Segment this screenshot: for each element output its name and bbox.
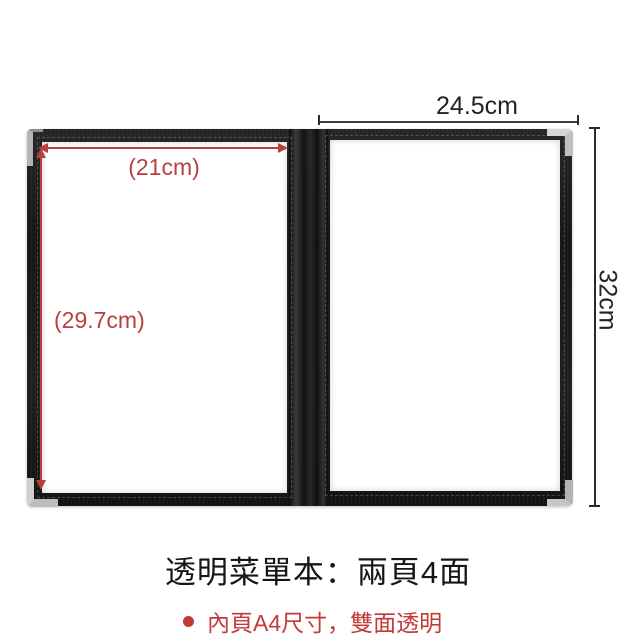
arrowhead-right	[278, 143, 288, 153]
inner-height-arrow-line	[40, 150, 42, 481]
corner-protector-bottom-right	[547, 480, 573, 506]
outer-height-label: 32cm	[593, 269, 622, 330]
inner-width-label: (21cm)	[44, 155, 284, 180]
corner-protector-top-right	[547, 129, 573, 156]
outer-width-line	[319, 121, 578, 123]
inner-width-arrow-line	[44, 147, 284, 149]
right-page	[330, 140, 560, 491]
caption-title: 透明菜單本：兩頁4面	[165, 547, 471, 592]
outer-width-label: 24.5cm	[436, 92, 518, 121]
outer-width-tick-left	[318, 115, 320, 125]
folder-spine	[289, 129, 328, 506]
product-image: 24.5cm 32cm (21cm) (29.7cm) 透明菜單本：兩頁4面 內…	[0, 0, 640, 640]
outer-height-tick-bottom	[589, 505, 600, 507]
caption-bullet-text: 內頁A4尺寸，雙面透明	[207, 604, 442, 638]
outer-width-tick-right	[577, 115, 579, 125]
arrowhead-down	[36, 480, 46, 490]
outer-height-line	[594, 128, 596, 507]
bullet-dot-icon	[183, 616, 194, 627]
outer-height-tick-top	[589, 127, 600, 129]
caption-bullet-item: 內頁A4尺寸，雙面透明	[183, 604, 442, 638]
inner-height-label: (29.7cm)	[54, 308, 145, 333]
arrowhead-up	[36, 148, 46, 158]
